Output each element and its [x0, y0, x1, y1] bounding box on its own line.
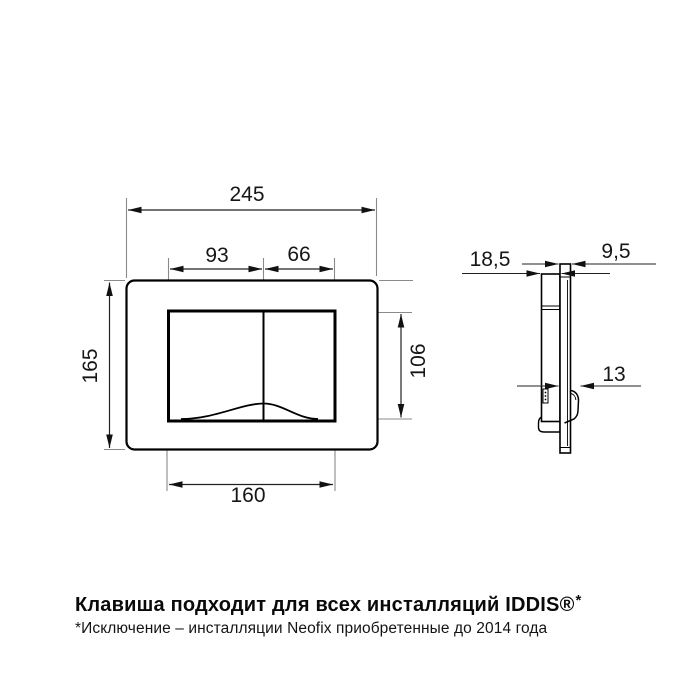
- dim-label-button-depth: 13: [602, 363, 625, 386]
- dim-label-button-right: 66: [287, 243, 310, 266]
- dim-label-depth: 18,5: [470, 248, 511, 271]
- dim-label-height: 165: [79, 348, 102, 383]
- footnote-asterisk: *: [576, 592, 582, 609]
- technical-drawing-page: 245 93 66 165 106 160: [0, 0, 700, 700]
- compatibility-footnote: *Исключение – инсталляции Neofix приобре…: [75, 620, 547, 638]
- side-plate-outline: [560, 264, 571, 453]
- dim-label-plate-thickness: 9,5: [601, 240, 630, 263]
- dim-label-button-width: 160: [230, 484, 265, 507]
- side-button-bulge-inner: [571, 394, 576, 401]
- side-clip-dots: [545, 392, 547, 401]
- side-view: 18,5 9,5 13: [462, 240, 656, 453]
- dim-label-button-left: 93: [205, 244, 228, 267]
- dim-label-width: 245: [229, 183, 264, 206]
- compatibility-heading-text: Клавиша подходит для всех инсталляций ID…: [75, 594, 575, 616]
- dim-label-button-height: 106: [407, 343, 430, 378]
- compatibility-heading: Клавиша подходит для всех инсталляций ID…: [75, 592, 582, 617]
- front-view: 245 93 66 165 106 160: [79, 183, 430, 507]
